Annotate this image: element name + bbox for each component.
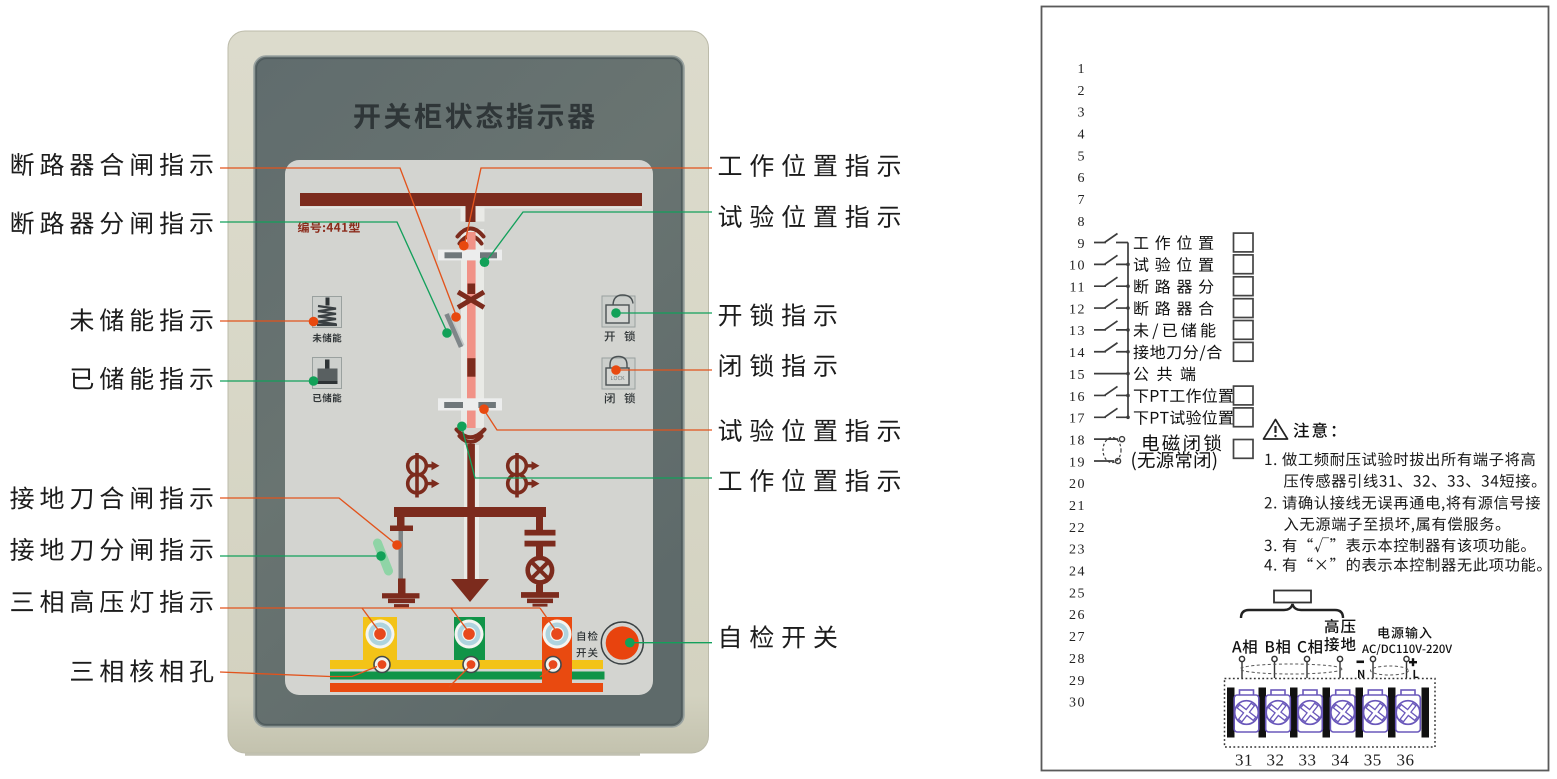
svg-text:3: 3 [1078, 106, 1087, 121]
svg-text:30: 30 [1069, 696, 1086, 711]
svg-text:10: 10 [1069, 259, 1086, 274]
svg-text:6: 6 [1078, 171, 1087, 186]
svg-text:16: 16 [1069, 390, 1086, 405]
svg-text:20: 20 [1069, 477, 1086, 492]
svg-text:35: 35 [1364, 751, 1382, 770]
svg-text:8: 8 [1078, 215, 1087, 230]
svg-text:33: 33 [1299, 751, 1317, 770]
svg-text:13: 13 [1069, 324, 1086, 339]
svg-text:15: 15 [1069, 368, 1086, 383]
svg-text:5: 5 [1078, 149, 1087, 164]
svg-text:36: 36 [1397, 751, 1415, 770]
svg-text:22: 22 [1069, 521, 1086, 536]
svg-text:14: 14 [1069, 346, 1086, 361]
svg-text:25: 25 [1069, 586, 1086, 601]
svg-text:18: 18 [1069, 434, 1086, 449]
svg-text:32: 32 [1267, 751, 1285, 770]
svg-text:12: 12 [1069, 302, 1086, 317]
svg-text:34: 34 [1331, 751, 1349, 770]
svg-text:19: 19 [1069, 455, 1086, 470]
svg-text:24: 24 [1069, 565, 1086, 580]
svg-text:26: 26 [1069, 608, 1086, 623]
svg-text:27: 27 [1069, 630, 1086, 645]
svg-text:21: 21 [1069, 499, 1086, 514]
svg-text:7: 7 [1078, 193, 1087, 208]
svg-text:4: 4 [1078, 128, 1087, 143]
svg-text:9: 9 [1078, 237, 1087, 252]
svg-text:23: 23 [1069, 543, 1086, 558]
svg-text:31: 31 [1235, 751, 1253, 770]
svg-text:1: 1 [1078, 62, 1087, 77]
svg-text:2: 2 [1078, 84, 1087, 99]
svg-text:29: 29 [1069, 674, 1086, 689]
svg-text:17: 17 [1069, 412, 1086, 427]
svg-text:11: 11 [1070, 281, 1086, 296]
svg-text:28: 28 [1069, 652, 1086, 667]
